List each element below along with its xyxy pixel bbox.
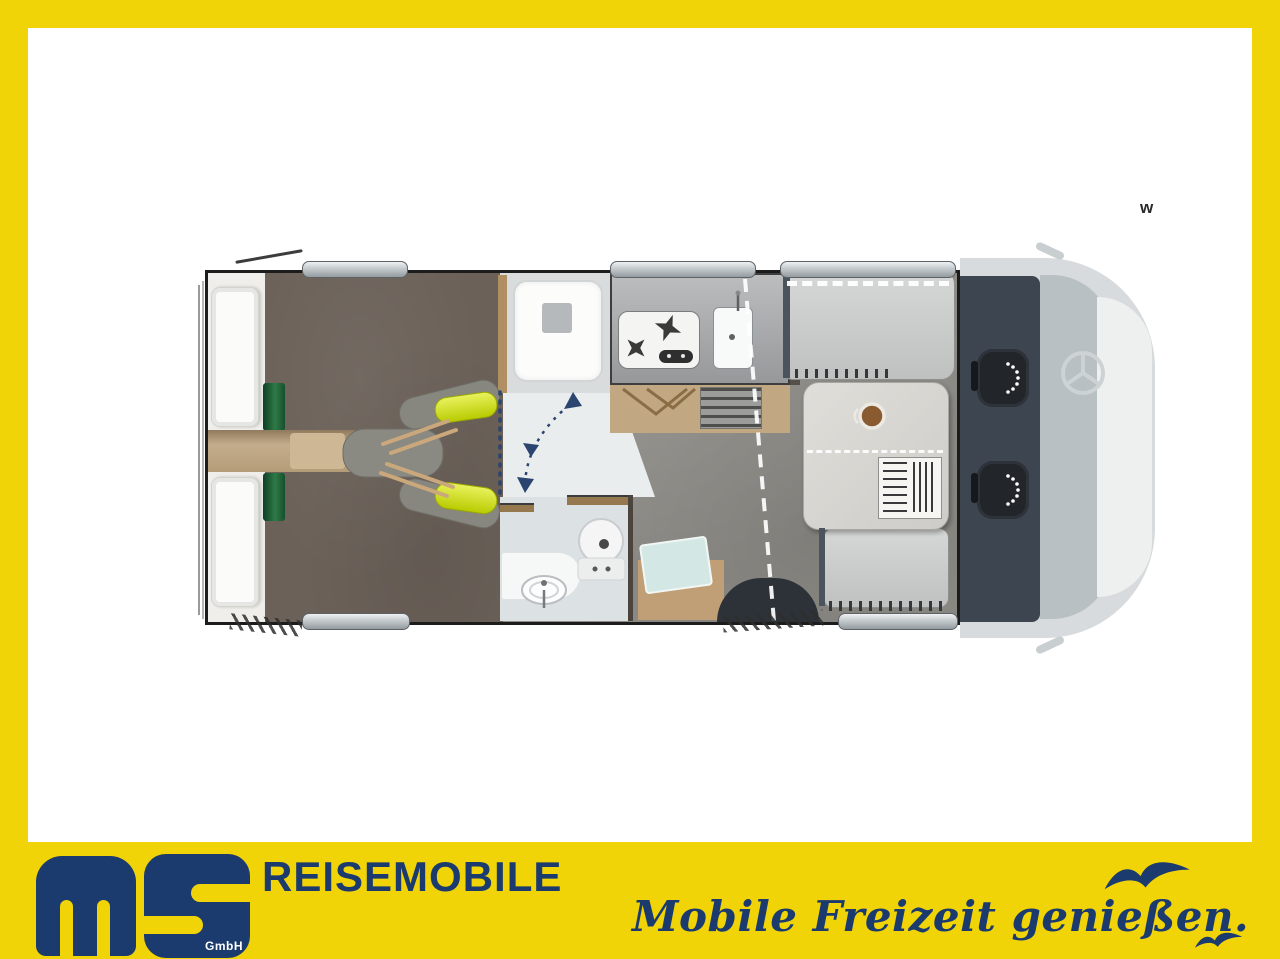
toilet-icon	[578, 519, 625, 580]
logo-gmbh-label: GmbH	[205, 939, 243, 953]
window-kitchen	[610, 261, 756, 278]
section-dashed-line	[745, 279, 775, 633]
window-dinette-top	[780, 261, 956, 278]
window-dinette-bottom	[838, 613, 958, 630]
watermark-letter: w	[1140, 198, 1153, 218]
logo-letter-s: GmbH	[144, 854, 250, 958]
motorhome-floorplan	[195, 245, 1165, 655]
window-rear-bottom	[302, 613, 410, 630]
awning-dashed-line	[787, 281, 949, 286]
door-swing-arc	[517, 392, 582, 493]
logo-m-slot	[60, 900, 73, 956]
sink-faucet-icon	[729, 291, 741, 341]
seagull-icon-small	[1194, 928, 1244, 954]
seagull-icon-large	[1103, 856, 1193, 898]
seat-dot-pattern	[1006, 362, 1020, 506]
logo-letter-m	[36, 856, 136, 956]
steering-wheel-icon	[1063, 353, 1103, 393]
hob-burners-icon	[619, 310, 693, 365]
ms-logo: GmbH	[36, 854, 251, 959]
company-name: REISEMOBILE	[262, 856, 562, 898]
logo-s-notch-lower	[143, 916, 203, 934]
coffee-cup-icon	[855, 404, 884, 428]
logo-m-slot	[97, 900, 110, 956]
brand-slogan: Mobile Freizeit genießen.	[632, 896, 1249, 938]
dealer-advert-image: w	[0, 0, 1280, 959]
locker-chevrons	[623, 389, 695, 414]
washbasin-icon	[522, 576, 566, 608]
floorplan-decor-layer	[195, 245, 1165, 655]
window-rear-top	[302, 261, 408, 278]
logo-s-notch-upper	[191, 884, 251, 902]
